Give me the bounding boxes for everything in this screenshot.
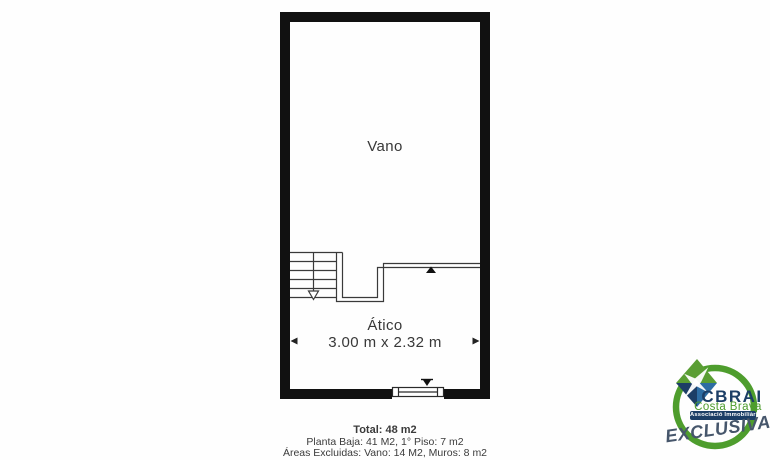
summary-excluded: Áreas Excluidas: Vano: 14 M2, Muros: 8 m… (283, 448, 487, 459)
area-summary: Total: 48 m2 Planta Baja: 41 M2, 1° Piso… (283, 425, 487, 459)
agency-logo: CBRAI Costa Brava Associació Immobiliàri… (660, 352, 770, 460)
summary-floors: Planta Baja: 41 M2, 1° Piso: 7 m2 (283, 437, 487, 448)
room-dimensions: 3.00 m x 2.32 m (328, 334, 442, 351)
room-label-atico: Ático (367, 317, 402, 334)
room-label-vano: Vano (367, 138, 403, 155)
summary-total: Total: 48 m2 (283, 425, 487, 436)
floor-plan-drawing (0, 0, 770, 460)
floor-plan-page: Vano Ático 3.00 m x 2.32 m Total: 48 m2 … (0, 0, 770, 460)
entrance-window (393, 388, 444, 397)
